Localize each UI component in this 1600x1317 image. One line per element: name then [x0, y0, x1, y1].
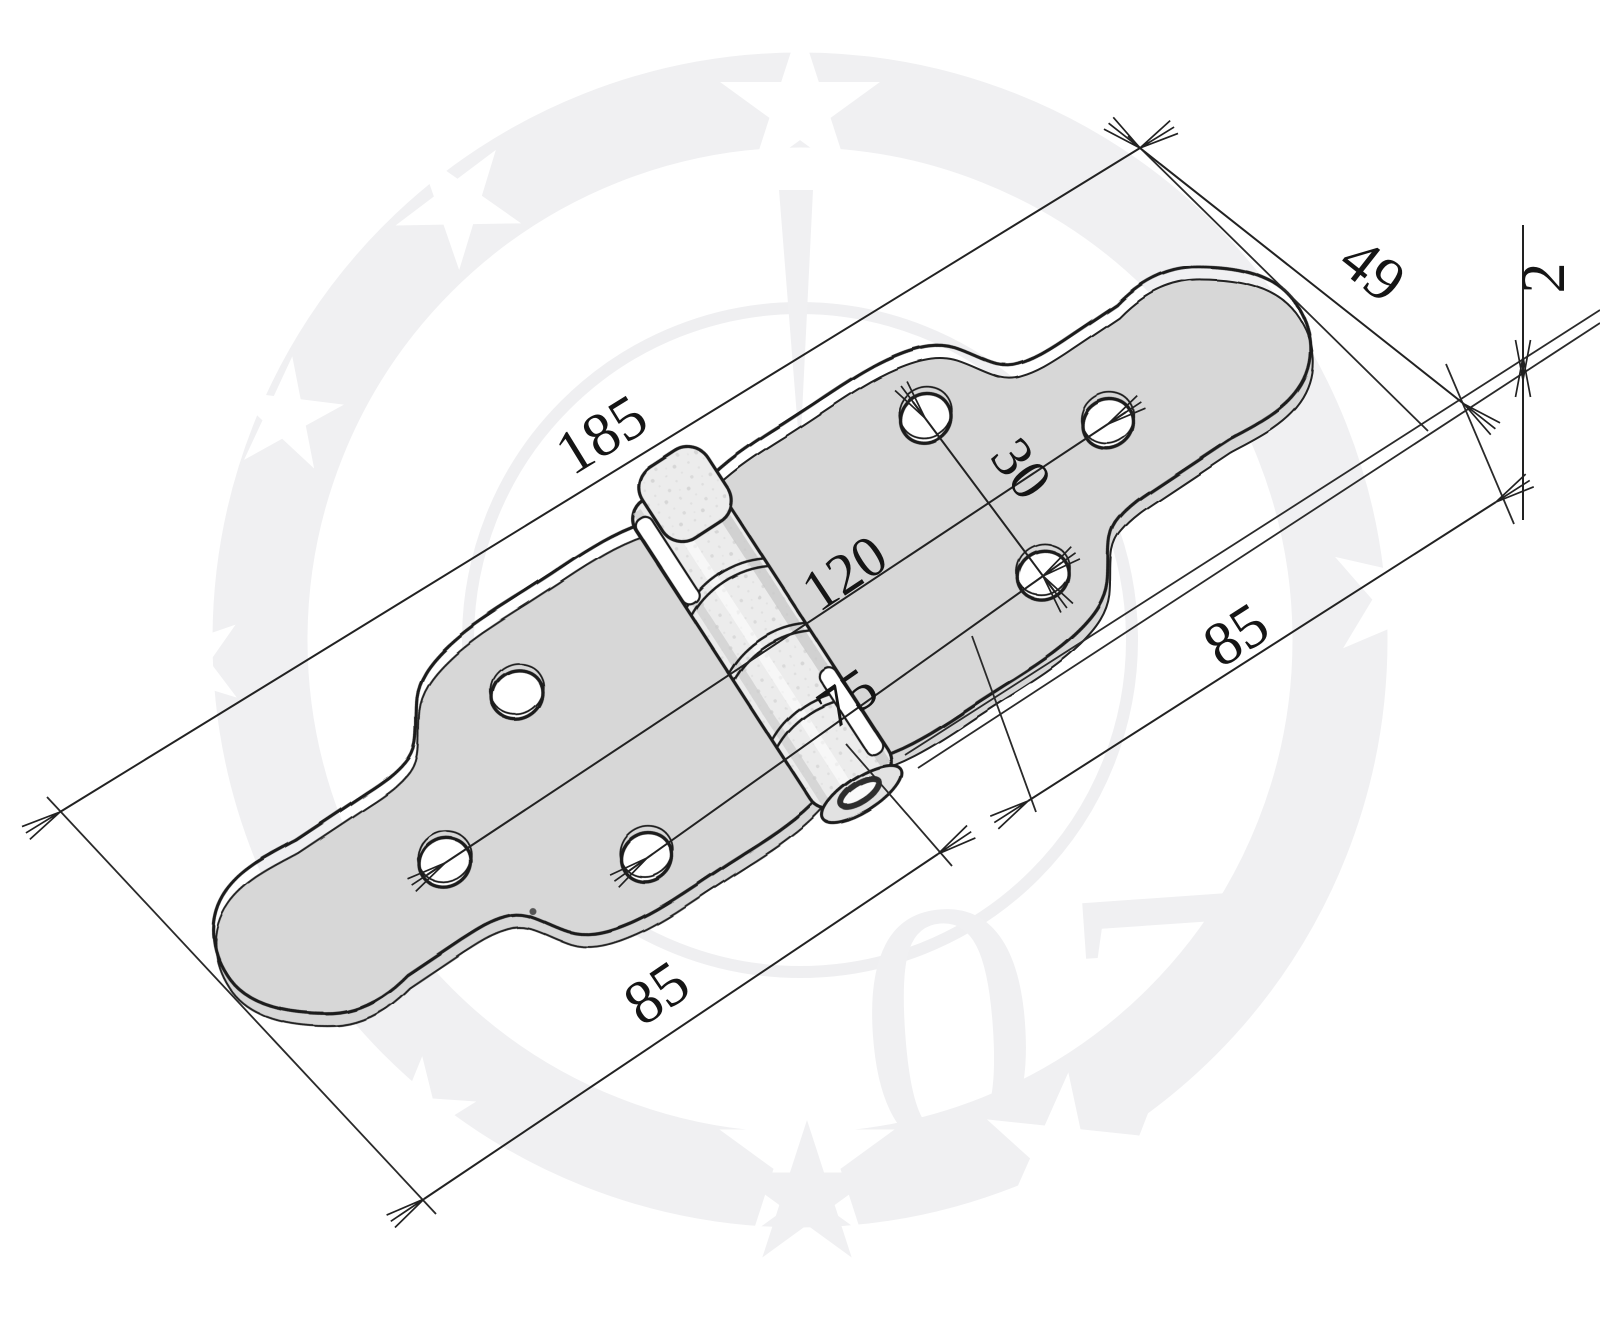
dim-label-overall-length: 185 — [544, 382, 659, 489]
dim-label-end-width: 49 — [1327, 224, 1418, 316]
dim-label-left-leaf: 85 — [612, 948, 701, 1039]
dim-label-right-leaf: 85 — [1192, 590, 1281, 681]
hinge-technical-drawing: 07 — [0, 0, 1600, 1317]
extension-right-far — [1446, 364, 1514, 524]
drawing-canvas: 07 — [0, 0, 1600, 1317]
dim-label-thickness: 2 — [1510, 263, 1578, 294]
